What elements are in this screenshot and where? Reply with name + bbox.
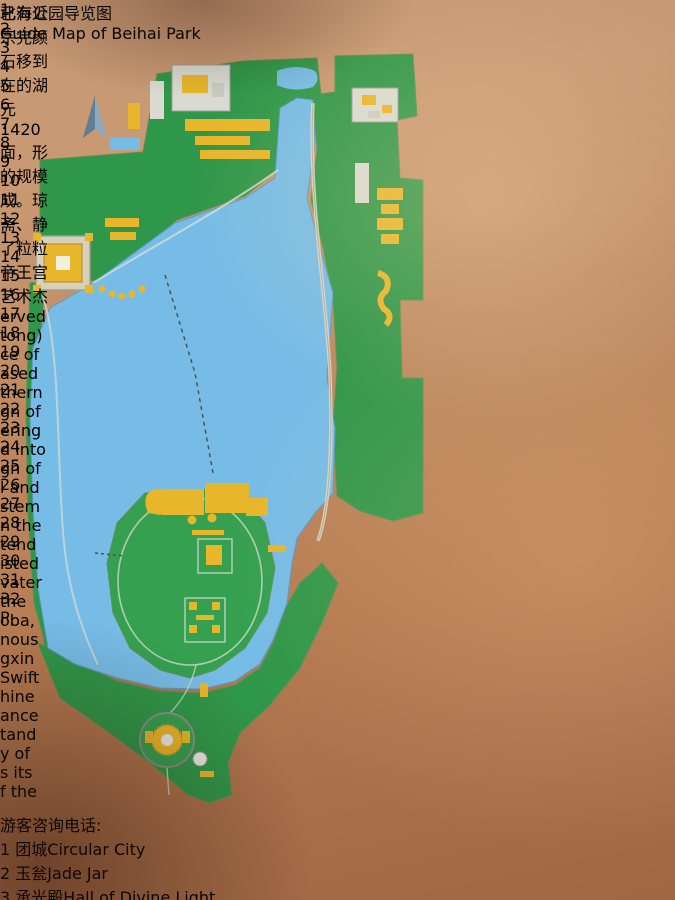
map-marker-4: 4	[0, 57, 675, 76]
beihai-park-sign-photo: 北海公园导览图 Guide Map of Beihai Park	[0, 0, 675, 900]
adjacent-text-en: gn of	[0, 459, 55, 478]
adjacent-text-zh: 成。琼	[0, 187, 55, 211]
adjacent-text-en: ased	[0, 364, 55, 383]
map-marker-18: 18	[0, 323, 675, 342]
map-marker-16: 16	[0, 285, 675, 304]
park-map: 1234567891011121314151617181920212223242…	[0, 43, 675, 836]
map-marker-32: 32	[0, 589, 675, 608]
map-marker-5: 5	[0, 76, 675, 95]
map-marker-26: 26	[0, 475, 675, 494]
map-marker-1: 1	[0, 0, 675, 19]
map-marker-23: 23	[0, 418, 675, 437]
adjacent-text-en: l and	[0, 478, 55, 497]
adjacent-text-en: f the	[0, 782, 55, 801]
adjacent-text-en: nous	[0, 630, 55, 649]
adjacent-text-en: hine	[0, 687, 55, 706]
adjacent-text-en: ance	[0, 706, 55, 725]
map-marker-24: 24	[0, 437, 675, 456]
adjacent-text-en: oba,	[0, 611, 55, 630]
adjacent-text-en: isted	[0, 554, 55, 573]
adjacent-text-zh: 艺术杰	[0, 283, 55, 307]
map-marker-10: 10	[0, 171, 675, 190]
adjacent-text-zh: 石移到	[0, 48, 55, 72]
adjacent-text-en: the	[0, 592, 55, 611]
adjacent-text-en: erved	[0, 307, 55, 326]
adjacent-text-en: thern	[0, 383, 55, 402]
adjacent-text-zh: 宗完颜	[0, 24, 55, 48]
map-marker-29: 29	[0, 532, 675, 551]
adjacent-text-en: tend	[0, 535, 55, 554]
adjacent-text-en: gxin	[0, 649, 55, 668]
adjacent-text-en: ce of	[0, 345, 55, 364]
map-marker-15: 15	[0, 266, 675, 285]
adjacent-text-en: vater	[0, 573, 55, 592]
map-marker-30: 30	[0, 551, 675, 570]
map-marker-6: 6	[0, 95, 675, 114]
map-marker-19: 19	[0, 342, 675, 361]
adjacent-text-en: s its	[0, 763, 55, 782]
adjacent-text-zh: 元 1420	[0, 96, 55, 139]
map-marker-3: 3	[0, 38, 675, 57]
adjacent-text-zh: 的规模	[0, 163, 55, 187]
map-marker-11: 11	[0, 190, 675, 209]
map-parking-badge: P	[0, 608, 675, 627]
adjacent-text-en: tand	[0, 725, 55, 744]
adjacent-text-zh: 了粒粒	[0, 235, 55, 259]
adjacent-text-en: Swift	[0, 668, 55, 687]
adjacent-text-en: ering	[0, 421, 55, 440]
map-marker-25: 25	[0, 456, 675, 475]
map-marker-21: 21	[0, 380, 675, 399]
map-marker-13: 13	[0, 228, 675, 247]
map-marker-22: 22	[0, 399, 675, 418]
map-overlay: 1234567891011121314151617181920212223242…	[0, 0, 675, 900]
map-marker-14: 14	[0, 247, 675, 266]
adjacent-text-zh: 斋、静	[0, 211, 55, 235]
map-marker-28: 28	[0, 513, 675, 532]
adjacent-text-en: y of	[0, 744, 55, 763]
map-marker-31: 31	[0, 570, 675, 589]
adjacent-text-zh: 已有近	[0, 0, 55, 24]
adjacent-text-en: tong)	[0, 326, 55, 345]
adjacent-text-en: n the	[0, 516, 55, 535]
adjacent-text-en: d into	[0, 440, 55, 459]
map-marker-9: 9	[0, 152, 675, 171]
adjacent-text-en: gn of	[0, 402, 55, 421]
adjacent-text-en: stem	[0, 497, 55, 516]
adjacent-text-zh: 在的湖	[0, 72, 55, 96]
map-marker-8: 8	[0, 133, 675, 152]
map-marker-27: 27	[0, 494, 675, 513]
adjacent-sign-panel: 已有近宗完颜石移到在的湖元 1420面，形的规模成。琼斋、静了粒粒帝王宫艺术杰e…	[0, 0, 55, 900]
map-marker-17: 17	[0, 304, 675, 323]
map-marker-7: 7	[0, 114, 675, 133]
adjacent-text-zh: 面，形	[0, 139, 55, 163]
map-marker-12: 12	[0, 209, 675, 228]
map-marker-20: 20	[0, 361, 675, 380]
adjacent-text-zh: 帝王宫	[0, 259, 55, 283]
map-marker-2: 2	[0, 19, 675, 38]
